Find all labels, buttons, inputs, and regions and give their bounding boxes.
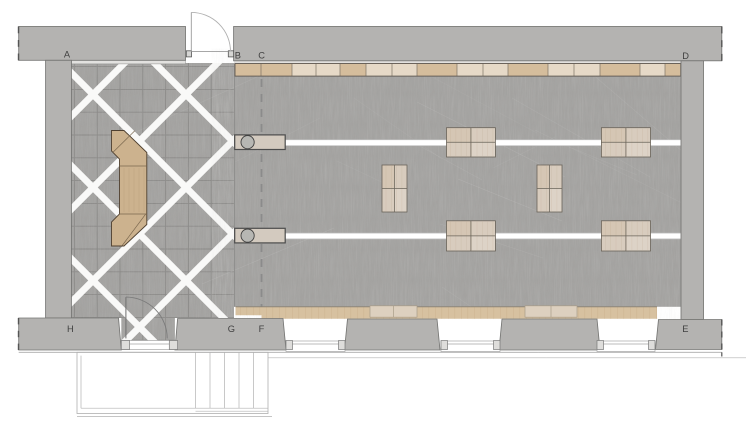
svg-text:B: B bbox=[235, 50, 241, 60]
svg-text:H: H bbox=[67, 324, 74, 334]
svg-text:F: F bbox=[259, 324, 265, 334]
svg-text:D: D bbox=[682, 51, 689, 61]
svg-text:A: A bbox=[64, 50, 71, 60]
svg-text:G: G bbox=[228, 324, 235, 334]
svg-text:E: E bbox=[682, 324, 688, 334]
svg-text:C: C bbox=[258, 50, 265, 60]
